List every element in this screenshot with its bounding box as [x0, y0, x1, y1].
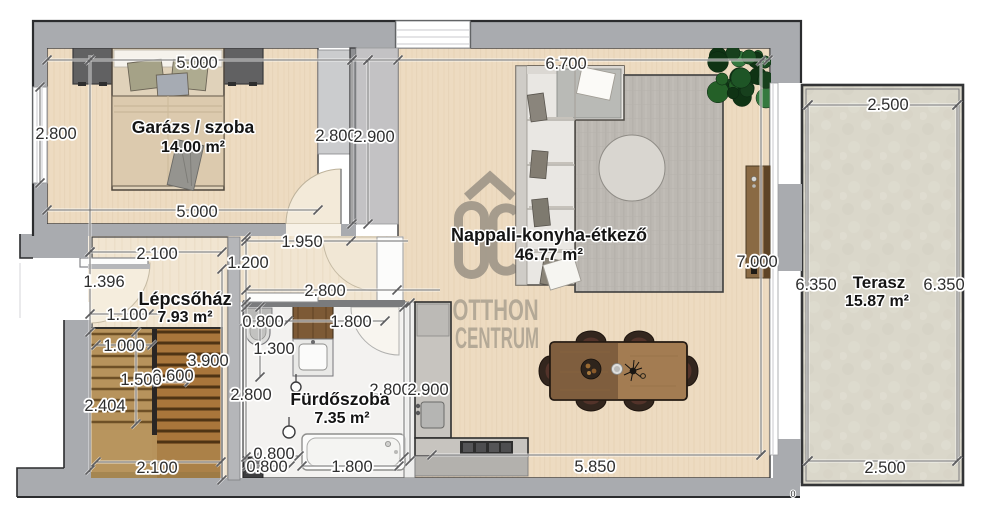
svg-text:2.800: 2.800	[315, 127, 356, 145]
svg-text:7.35 m²: 7.35 m²	[314, 410, 369, 427]
svg-text:1.500: 1.500	[120, 371, 161, 389]
svg-text:6.700: 6.700	[545, 55, 586, 73]
svg-text:2.100: 2.100	[136, 459, 177, 477]
svg-text:6.350: 6.350	[795, 276, 836, 294]
svg-text:0: 0	[790, 489, 795, 499]
svg-text:7.93 m²: 7.93 m²	[157, 309, 212, 326]
svg-text:6.350: 6.350	[923, 276, 964, 294]
svg-text:CENTRUM: CENTRUM	[455, 322, 539, 355]
svg-text:1.800: 1.800	[330, 313, 371, 331]
svg-text:0.800: 0.800	[242, 313, 283, 331]
svg-text:2.404: 2.404	[84, 397, 125, 415]
svg-text:Lépcsőház: Lépcsőház	[138, 289, 231, 309]
svg-text:Fürdőszoba: Fürdőszoba	[290, 389, 389, 409]
svg-text:14.00 m²: 14.00 m²	[161, 139, 225, 156]
svg-text:5.850: 5.850	[574, 458, 615, 476]
svg-text:1.000: 1.000	[103, 337, 144, 355]
svg-text:15.87 m²: 15.87 m²	[845, 293, 909, 310]
svg-text:2.500: 2.500	[867, 96, 908, 114]
svg-text:Nappali-konyha-étkező: Nappali-konyha-étkező	[451, 225, 647, 245]
svg-text:7.000: 7.000	[736, 253, 777, 271]
svg-text:2.900: 2.900	[407, 381, 448, 399]
svg-text:2.800: 2.800	[304, 282, 345, 300]
svg-text:Garázs / szoba: Garázs / szoba	[132, 117, 255, 137]
svg-text:2.800: 2.800	[230, 386, 271, 404]
svg-text:1.800: 1.800	[331, 458, 372, 476]
svg-text:46.77 m²: 46.77 m²	[515, 245, 583, 264]
svg-text:1.200: 1.200	[227, 254, 268, 272]
svg-text:1.300: 1.300	[253, 340, 294, 358]
svg-text:2.500: 2.500	[864, 459, 905, 477]
svg-text:1.950: 1.950	[281, 233, 322, 251]
svg-text:2.800: 2.800	[35, 125, 76, 143]
svg-text:5.000: 5.000	[176, 54, 217, 72]
svg-text:Terasz: Terasz	[853, 273, 906, 292]
svg-text:2.900: 2.900	[353, 128, 394, 146]
svg-text:2.100: 2.100	[136, 245, 177, 263]
svg-text:1.396: 1.396	[83, 273, 124, 291]
svg-text:0.800: 0.800	[246, 458, 287, 476]
svg-text:5.000: 5.000	[176, 203, 217, 221]
